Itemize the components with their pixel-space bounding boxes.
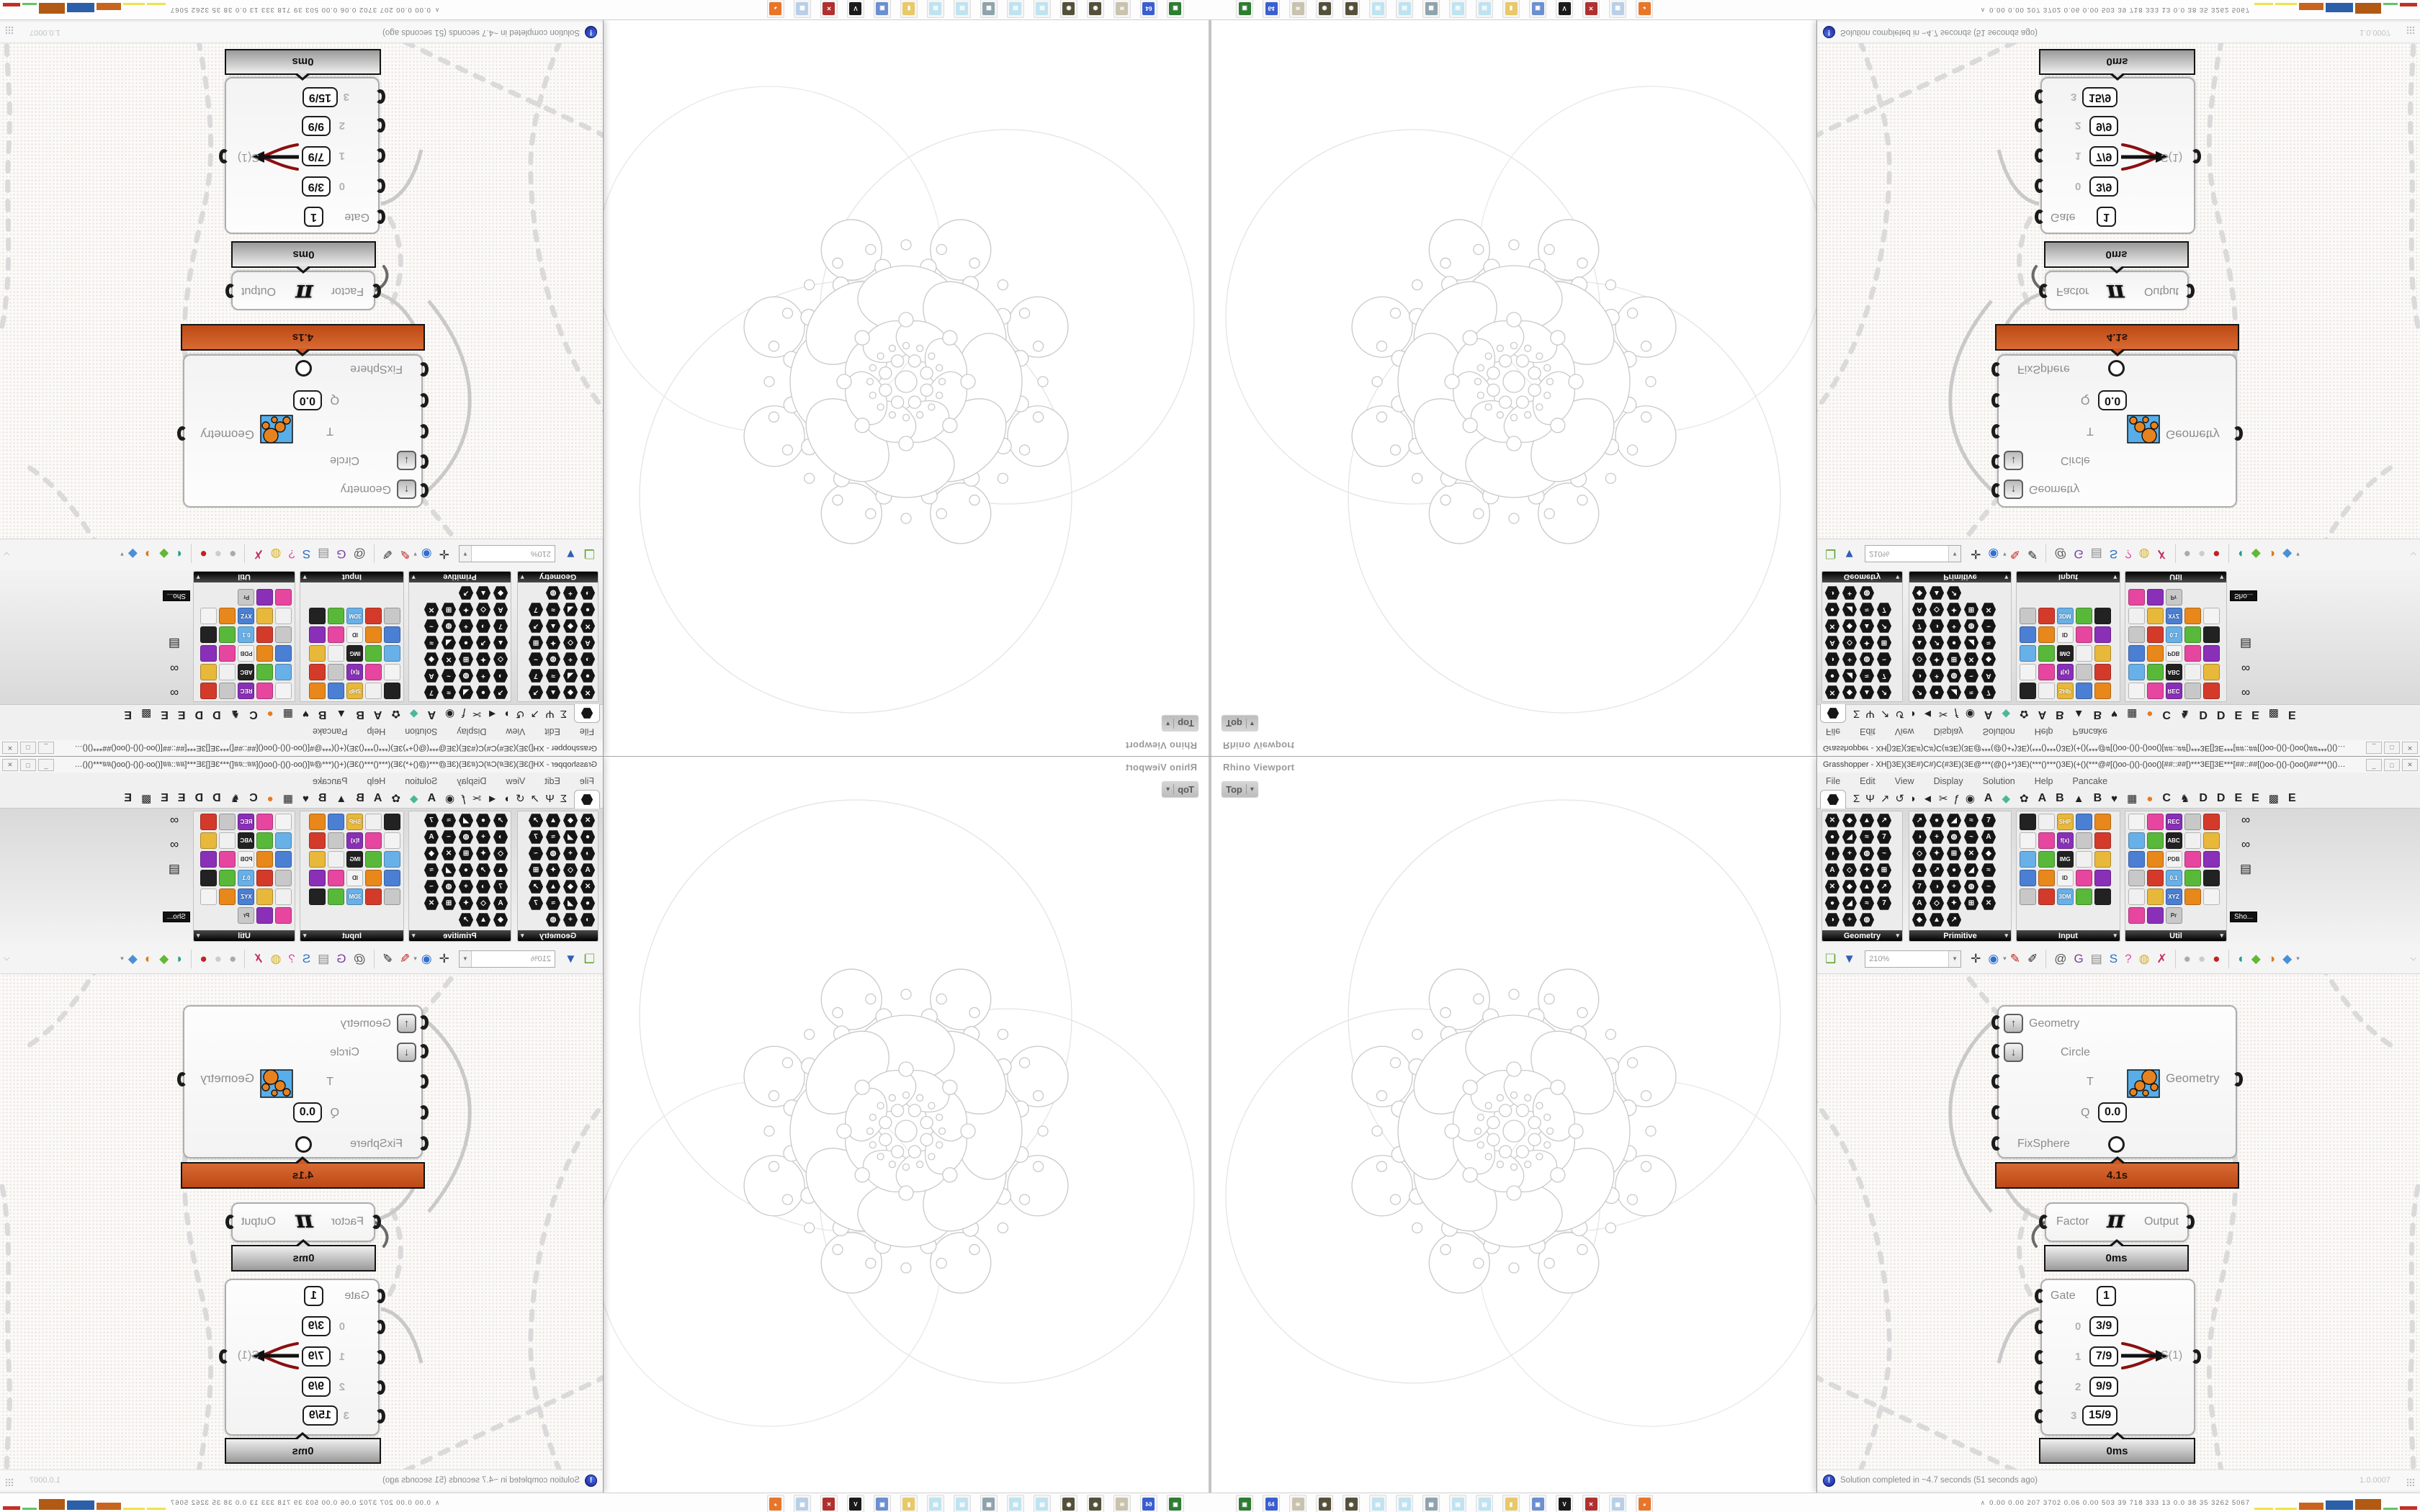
component-icon[interactable] <box>366 627 382 644</box>
component-icon[interactable] <box>2020 851 2036 868</box>
menu-edit[interactable]: Edit <box>1860 776 1875 786</box>
output-plug[interactable] <box>177 1072 187 1086</box>
component-icon[interactable] <box>276 627 292 644</box>
component-icon[interactable]: XYZ <box>238 888 255 905</box>
gh-category-tab[interactable]: D <box>195 793 204 804</box>
component-icon[interactable] <box>2094 888 2111 905</box>
component-icon[interactable] <box>2094 683 2111 700</box>
gh-category-tab[interactable]: A <box>2038 793 2047 804</box>
at-icon[interactable]: @ <box>2054 953 2066 965</box>
notebook-icon[interactable]: ▤ <box>318 953 329 965</box>
component-icon[interactable] <box>2147 870 2164 886</box>
folder-icon[interactable]: ▮ <box>1502 0 1520 18</box>
green-device-icon[interactable]: ▣ <box>1167 0 1184 18</box>
component-icon[interactable]: ▲ <box>493 863 508 878</box>
q-value-box[interactable]: 0.0 <box>2098 1102 2127 1122</box>
gh-category-tab[interactable]: E <box>2288 793 2296 804</box>
red-badge-icon[interactable]: ✕ <box>820 1495 838 1512</box>
component-icon[interactable]: ◇ <box>1930 603 1945 617</box>
tab-maths[interactable]: Σ <box>560 793 567 804</box>
component-icon[interactable]: ◍ <box>442 619 457 634</box>
component-icon[interactable] <box>220 608 236 625</box>
component-icon[interactable]: ● <box>581 896 596 911</box>
dark-medal-icon[interactable]: ◉ <box>1087 1495 1104 1512</box>
component-icon[interactable]: SHP <box>2057 814 2074 830</box>
viewport-tab-top[interactable]: Top ▾ <box>1162 781 1198 797</box>
tab-mesh[interactable]: ◄ <box>487 709 498 720</box>
component-icon[interactable]: ✕ <box>1981 603 1996 617</box>
component-icon[interactable]: ◑ <box>1912 830 1927 845</box>
component-icon[interactable]: ▲ <box>1912 863 1927 878</box>
component-icon[interactable]: ≈ <box>1981 636 1996 650</box>
component-icon[interactable]: ↗ <box>1877 685 1892 700</box>
calculator-icon[interactable]: ▦ <box>1609 1495 1626 1512</box>
tab-mesh[interactable]: ◄ <box>1922 793 1933 804</box>
resize-grip-icon[interactable] <box>5 1478 14 1487</box>
menu-solution[interactable]: Solution <box>1983 776 2015 786</box>
gh-category-tab[interactable]: ● <box>267 793 274 804</box>
tab-surface[interactable]: ◗ <box>1910 709 1917 720</box>
component-icon[interactable]: 7 <box>1877 830 1892 845</box>
cluster-sphere-icon[interactable]: ● <box>215 953 222 965</box>
component-icon[interactable] <box>2076 851 2092 868</box>
component-icon[interactable] <box>2147 608 2164 625</box>
component-icon[interactable]: ~ <box>1877 652 1892 667</box>
gh-category-tab[interactable]: B <box>2056 793 2064 804</box>
zoom-fit-icon[interactable]: ✛ <box>1971 953 1981 965</box>
pink-box-icon[interactable]: ? <box>2125 953 2131 965</box>
gh-category-tab[interactable]: ♥ <box>302 709 309 720</box>
tab-vector[interactable]: ↗ <box>1881 793 1890 804</box>
row-value-box[interactable]: 7/9 <box>2089 1346 2118 1367</box>
component-icon[interactable] <box>2020 870 2036 886</box>
component-icon[interactable] <box>2076 627 2092 644</box>
palette-panel-label[interactable]: Util▾ <box>194 930 295 941</box>
component-icon[interactable]: XYZ <box>2166 608 2182 625</box>
component-icon[interactable] <box>2094 870 2111 886</box>
component-icon[interactable] <box>2128 814 2145 830</box>
close-button[interactable]: ✕ <box>2402 742 2418 754</box>
input-plug[interactable] <box>2035 1380 2045 1395</box>
tab-maths[interactable]: Σ <box>1853 793 1860 804</box>
component-icon[interactable]: ✦ <box>1930 847 1945 861</box>
gh-category-tab[interactable]: ▦ <box>2127 709 2137 720</box>
gh-category-tab[interactable]: ▲ <box>336 793 346 804</box>
gh-category-tab[interactable]: ▲ <box>2074 709 2084 720</box>
component-icon[interactable] <box>2094 851 2111 868</box>
menu-solution[interactable]: Solution <box>405 727 437 737</box>
component-icon[interactable]: ~ <box>1981 619 1996 634</box>
gh-category-tab[interactable]: ♞ <box>230 709 240 720</box>
gh-category-tab[interactable]: D <box>212 793 221 804</box>
component-icon[interactable]: ✦ <box>1947 603 1962 617</box>
component-icon[interactable]: + <box>459 880 474 894</box>
gha-icon[interactable]: G <box>2074 953 2083 965</box>
component-icon[interactable] <box>366 683 382 700</box>
arrow-down-button[interactable]: ↓ <box>2004 1043 2023 1062</box>
component-icon[interactable]: ↗ <box>529 814 544 828</box>
gh-category-tab[interactable]: E <box>124 708 132 720</box>
component-icon[interactable] <box>201 851 218 868</box>
gh-category-tab[interactable]: E <box>124 793 132 804</box>
input-plug[interactable] <box>418 1015 429 1030</box>
chevron-down-icon[interactable]: ▾ <box>2003 550 2007 558</box>
component-icon[interactable]: IMG <box>347 646 364 662</box>
component-icon[interactable] <box>2076 665 2092 681</box>
component-icon[interactable]: ● <box>581 669 596 683</box>
open-file-icon[interactable]: ❏ <box>584 548 595 560</box>
component-icon[interactable]: ◍ <box>1860 652 1875 667</box>
notepad-icon[interactable]: ▤ <box>1007 0 1024 18</box>
component-icon[interactable]: ● <box>1930 814 1945 828</box>
component-icon[interactable] <box>2147 646 2164 662</box>
row-value-box[interactable]: 15/9 <box>2082 87 2117 107</box>
component-icon[interactable]: + <box>1947 880 1962 894</box>
component-icon[interactable] <box>2094 627 2111 644</box>
component-icon[interactable] <box>385 665 401 681</box>
preview-eye-icon[interactable]: ◉ <box>1988 953 1999 965</box>
palette-panel-label[interactable]: Geometry▾ <box>518 572 598 582</box>
node-pi-factor[interactable]: Factor π Output <box>2045 1202 2189 1242</box>
component-icon[interactable]: ◆ <box>1842 619 1857 634</box>
input-plug[interactable] <box>418 483 429 498</box>
component-icon[interactable] <box>257 646 274 662</box>
component-icon[interactable]: Pr <box>238 590 255 606</box>
component-icon[interactable]: ◢ <box>1842 830 1857 845</box>
gh-category-tab[interactable]: ● <box>2146 709 2153 720</box>
component-icon[interactable]: + <box>1842 586 1857 600</box>
component-icon[interactable]: ▲ <box>1860 619 1875 634</box>
component-icon[interactable]: ◇ <box>493 652 508 667</box>
gh-category-tab[interactable]: ▩ <box>2269 793 2279 804</box>
component-icon[interactable]: ✦ <box>1947 896 1962 911</box>
zoom-fit-icon[interactable]: ✛ <box>439 548 449 560</box>
component-icon[interactable]: ● <box>459 863 474 878</box>
calculator-icon[interactable]: ▦ <box>1609 0 1626 18</box>
component-icon[interactable]: PDB <box>238 646 255 662</box>
component-icon[interactable]: ↗ <box>1930 863 1945 878</box>
red-badge-icon[interactable]: ✕ <box>820 0 838 18</box>
at-icon[interactable]: @ <box>2054 548 2066 560</box>
input-plug[interactable] <box>1991 1074 2002 1089</box>
component-icon[interactable]: ◑ <box>1930 619 1945 634</box>
component-icon[interactable] <box>2128 665 2145 681</box>
tab-curve[interactable]: ↺ <box>1895 793 1904 804</box>
component-icon[interactable] <box>385 832 401 849</box>
component-icon[interactable]: ✕ <box>581 685 596 700</box>
component-icon[interactable]: A <box>493 603 508 617</box>
component-icon[interactable]: Pr <box>2166 907 2182 924</box>
input-plug[interactable] <box>371 1215 381 1229</box>
input-plug[interactable] <box>418 1136 429 1151</box>
chevron-down-icon[interactable]: ▾ <box>120 550 124 558</box>
input-plug[interactable] <box>375 1289 385 1303</box>
component-icon[interactable]: ↗ <box>459 586 474 600</box>
cluster-sphere-icon[interactable]: ● <box>215 548 222 560</box>
tab-display[interactable]: ◉ <box>445 793 454 804</box>
wire-display-icon[interactable]: ✗ <box>2156 548 2166 560</box>
component-icon[interactable] <box>328 683 345 700</box>
grasshopper-canvas[interactable]: ↑ ↓ Geometry Circle T Q 0.0 FixSphere Ge… <box>1817 43 2420 539</box>
close-button[interactable]: ✕ <box>2 759 18 771</box>
component-icon[interactable]: + <box>1930 830 1945 845</box>
component-icon[interactable]: + <box>476 830 491 845</box>
green-device-icon[interactable]: ▣ <box>1167 1495 1184 1512</box>
component-icon[interactable] <box>2094 832 2111 849</box>
component-icon[interactable]: A <box>493 896 508 911</box>
scroll-icon[interactable]: ≋ <box>1113 0 1131 18</box>
component-icon[interactable]: f(x) <box>2057 832 2074 849</box>
component-icon[interactable]: ✕ <box>424 603 439 617</box>
row-value-box[interactable]: 3/9 <box>302 1316 331 1336</box>
component-icon[interactable]: ▲ <box>493 636 508 650</box>
component-icon[interactable]: IMG <box>2057 646 2074 662</box>
menu-display[interactable]: Display <box>1934 776 1963 786</box>
component-icon[interactable] <box>310 851 326 868</box>
component-icon[interactable]: ⊞ <box>529 636 544 650</box>
component-icon[interactable]: ✦ <box>1930 652 1945 667</box>
green-shape-icon[interactable]: ◆ <box>159 548 169 560</box>
component-icon[interactable] <box>2128 907 2145 924</box>
dark-medal-icon[interactable]: ◉ <box>1316 0 1333 18</box>
component-icon[interactable]: 7 <box>1877 896 1892 911</box>
component-icon[interactable]: ~ <box>1877 847 1892 861</box>
red-pen-icon[interactable]: ✎ <box>2010 953 2020 965</box>
calculator-icon[interactable]: ▦ <box>794 1495 811 1512</box>
component-icon[interactable]: ✕ <box>1825 685 1840 700</box>
scroll-icon[interactable]: ≋ <box>1289 1495 1307 1512</box>
menu-edit[interactable]: Edit <box>544 776 560 786</box>
input-plug[interactable] <box>2035 148 2045 163</box>
component-icon[interactable] <box>257 851 274 868</box>
at-icon[interactable]: @ <box>354 953 366 965</box>
output-plug[interactable] <box>219 1349 229 1364</box>
component-icon[interactable]: ≈ <box>1981 863 1996 878</box>
component-icon[interactable] <box>366 888 382 905</box>
chevron-down-icon[interactable]: ▾ <box>2296 955 2300 963</box>
component-icon[interactable]: ≈ <box>424 863 439 878</box>
component-icon[interactable] <box>257 907 274 924</box>
component-icon[interactable] <box>2184 832 2201 849</box>
component-icon[interactable] <box>310 665 326 681</box>
row-value-box[interactable]: 9/9 <box>2089 1377 2118 1397</box>
component-icon[interactable] <box>220 832 236 849</box>
gate-value-box[interactable]: 1 <box>2097 207 2116 227</box>
row-value-box[interactable]: 15/9 <box>302 1405 338 1426</box>
component-icon[interactable] <box>276 646 292 662</box>
row-value-box[interactable]: 3/9 <box>2089 176 2118 197</box>
tab-maths[interactable]: Σ <box>560 709 567 720</box>
component-icon[interactable]: ↗ <box>1877 814 1892 828</box>
component-icon[interactable] <box>328 888 345 905</box>
minimize-button[interactable]: _ <box>38 742 54 754</box>
gh-category-tab[interactable]: ▲ <box>2074 793 2084 804</box>
palette-panel-label[interactable]: Util▾ <box>2125 930 2226 941</box>
component-icon[interactable] <box>2147 627 2164 644</box>
row-value-box[interactable]: 15/9 <box>2082 1405 2117 1426</box>
maximize-button[interactable]: □ <box>2384 759 2400 771</box>
floppy-64-icon[interactable]: 64 <box>1140 1495 1157 1512</box>
component-icon[interactable] <box>328 608 345 625</box>
input-plug[interactable] <box>1991 393 2002 408</box>
component-icon[interactable] <box>2128 851 2145 868</box>
grasshopper-titlebar[interactable]: Grasshopper - XH[)3E)(3E#)C#)C(#3E)(3E@*… <box>1817 739 2420 756</box>
notepad-icon[interactable]: ▤ <box>1476 0 1493 18</box>
component-icon[interactable]: ⊞ <box>1877 636 1892 650</box>
control-panel-icon[interactable]: ▣ <box>874 1495 891 1512</box>
menu-pancake[interactable]: Pancake <box>2072 727 2107 737</box>
gh-category-tab[interactable]: D <box>2217 708 2226 720</box>
gh-category-tab[interactable]: ◆ <box>2002 793 2010 804</box>
menu-pancake[interactable]: Pancake <box>313 727 348 737</box>
tab-surface[interactable]: ◗ <box>503 793 510 804</box>
component-icon[interactable]: 3DM <box>347 888 364 905</box>
component-icon[interactable] <box>2147 814 2164 830</box>
gh-category-tab[interactable]: ◆ <box>410 709 418 720</box>
input-plug[interactable] <box>2035 89 2045 104</box>
component-icon[interactable]: ◑ <box>581 586 596 600</box>
tab-params[interactable] <box>1820 704 1846 723</box>
row-value-box[interactable]: 9/9 <box>302 1377 331 1397</box>
component-icon[interactable]: ABC <box>238 832 255 849</box>
monitor-icon[interactable]: ▦ <box>980 1495 998 1512</box>
input-plug[interactable] <box>418 1105 429 1120</box>
component-icon[interactable]: + <box>563 586 578 600</box>
palette-panel-label[interactable]: Primitive▾ <box>409 572 511 582</box>
resize-grip-icon[interactable] <box>2406 26 2415 35</box>
component-icon[interactable]: ⊞ <box>442 896 457 911</box>
notepad-icon[interactable]: ▤ <box>954 1495 971 1512</box>
component-icon[interactable]: ▲ <box>1912 636 1927 650</box>
menu-view[interactable]: View <box>506 727 525 737</box>
component-icon[interactable]: 7 <box>493 619 508 634</box>
component-icon[interactable]: ↗ <box>476 636 491 650</box>
input-plug[interactable] <box>1991 1044 2002 1058</box>
component-icon[interactable]: ⊞ <box>1877 863 1892 878</box>
v-app-icon[interactable]: V <box>847 1495 864 1512</box>
component-icon[interactable] <box>276 683 292 700</box>
component-icon[interactable]: ≈ <box>546 669 561 683</box>
firefox-icon[interactable]: ◕ <box>1636 1495 1653 1512</box>
component-icon[interactable]: + <box>1842 652 1857 667</box>
component-icon[interactable] <box>276 832 292 849</box>
notebook-icon[interactable]: ▤ <box>2091 548 2102 560</box>
component-icon[interactable] <box>310 888 326 905</box>
input-plug[interactable] <box>418 454 429 469</box>
tab-intersect[interactable]: ✂ <box>472 793 482 804</box>
component-icon[interactable]: REC <box>238 683 255 700</box>
component-icon[interactable]: ✦ <box>459 603 474 617</box>
input-plug[interactable] <box>2035 118 2045 132</box>
component-icon[interactable] <box>201 814 218 830</box>
component-icon[interactable]: ◢ <box>1947 814 1962 828</box>
notepad-icon[interactable]: ▤ <box>1396 1495 1413 1512</box>
component-icon[interactable] <box>2038 646 2055 662</box>
input-plug[interactable] <box>2039 1215 2049 1229</box>
component-icon[interactable] <box>276 888 292 905</box>
component-icon[interactable]: ◑ <box>581 913 596 927</box>
component-icon[interactable] <box>366 608 382 625</box>
notepad-icon[interactable]: ▤ <box>927 1495 944 1512</box>
save-file-icon[interactable]: ▼ <box>1843 953 1855 965</box>
component-icon[interactable]: PDB <box>2166 851 2182 868</box>
gh-category-tab[interactable]: B <box>318 708 327 720</box>
open-file-icon[interactable]: ❏ <box>1825 953 1836 965</box>
menu-file[interactable]: File <box>1826 776 1840 786</box>
component-icon[interactable]: ~ <box>529 652 544 667</box>
resize-grip-icon[interactable] <box>5 26 14 35</box>
gh-category-tab[interactable]: E <box>2251 793 2259 804</box>
tab-intersect[interactable]: ✂ <box>472 709 482 720</box>
close-button[interactable]: ✕ <box>2402 759 2418 771</box>
component-icon[interactable]: ✕ <box>1825 619 1840 634</box>
palette-panel-label[interactable]: Util▾ <box>2125 572 2226 582</box>
firefox-icon[interactable]: ◕ <box>767 0 784 18</box>
component-icon[interactable]: ID <box>2057 870 2074 886</box>
component-icon[interactable]: f(x) <box>2057 665 2074 681</box>
cluster-sphere-icon[interactable]: ● <box>2184 548 2191 560</box>
component-icon[interactable] <box>385 627 401 644</box>
component-icon[interactable]: ◆ <box>424 847 439 861</box>
cluster-sphere-icon[interactable]: ● <box>2184 953 2191 965</box>
component-icon[interactable] <box>310 608 326 625</box>
tab-curve[interactable]: ↺ <box>516 709 525 720</box>
arrow-down-button[interactable]: ↓ <box>397 1043 416 1062</box>
node-gate-list[interactable]: Gate 1 0 3/9 1 7/9 2 9/9 3 15/9 S(1) <box>225 1279 380 1436</box>
component-icon[interactable]: ◑ <box>1825 847 1840 861</box>
arrow-down-button[interactable]: ↓ <box>397 451 416 470</box>
scroll-icon[interactable]: ≋ <box>1289 0 1307 18</box>
component-icon[interactable] <box>328 851 345 868</box>
component-icon[interactable]: ◆ <box>563 685 578 700</box>
row-value-box[interactable]: 9/9 <box>302 116 331 136</box>
gh-category-tab[interactable]: D <box>212 708 221 720</box>
component-icon[interactable]: XYZ <box>238 608 255 625</box>
component-icon[interactable]: ~ <box>442 669 457 683</box>
component-icon[interactable] <box>385 814 401 830</box>
component-icon[interactable] <box>2076 832 2092 849</box>
component-icon[interactable]: ≈ <box>442 685 457 700</box>
gh-category-tab[interactable]: ▦ <box>2127 793 2137 804</box>
fixsphere-toggle[interactable] <box>2108 1136 2125 1153</box>
input-plug[interactable] <box>1991 1136 2002 1151</box>
component-icon[interactable] <box>2203 851 2220 868</box>
component-icon[interactable]: ↗ <box>529 619 544 634</box>
floppy-64-icon[interactable]: 64 <box>1263 0 1280 18</box>
notepad-icon[interactable]: ▤ <box>1396 0 1413 18</box>
component-icon[interactable] <box>2147 832 2164 849</box>
component-icon[interactable] <box>2020 888 2036 905</box>
gh-category-tab[interactable]: C <box>2162 708 2171 720</box>
cluster-sphere-icon[interactable]: ● <box>229 953 236 965</box>
component-icon[interactable]: ◢ <box>563 603 578 617</box>
component-icon[interactable] <box>2147 665 2164 681</box>
component-icon[interactable] <box>310 627 326 644</box>
row-value-box[interactable]: 7/9 <box>2089 146 2118 166</box>
component-icon[interactable] <box>2038 683 2055 700</box>
output-plug[interactable] <box>177 426 187 441</box>
component-icon[interactable]: ◇ <box>476 603 491 617</box>
component-icon[interactable]: ↗ <box>1912 685 1927 700</box>
arrow-up-button[interactable]: ↑ <box>2004 1014 2023 1033</box>
tab-params[interactable] <box>574 704 600 723</box>
grasshopper-canvas[interactable]: ↑ ↓ Geometry Circle T Q 0.0 FixSphere Ge… <box>0 43 603 539</box>
gh-category-tab[interactable]: ▲ <box>336 709 346 720</box>
component-icon[interactable]: 7 <box>1912 880 1927 894</box>
component-icon[interactable]: ✕ <box>1964 652 1979 667</box>
component-icon[interactable]: ◇ <box>1912 847 1927 861</box>
orange-shape-icon[interactable]: ◑ <box>2268 548 2275 560</box>
